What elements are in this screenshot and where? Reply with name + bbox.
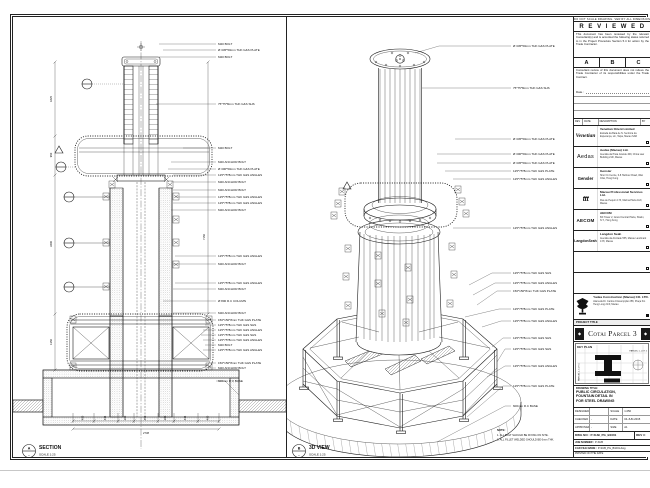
venetian-logo: Venetian — [576, 133, 596, 139]
consultant-row-langdonseah: LangdonSeah Langdon Seah Avenida da Amiz… — [574, 231, 650, 252]
leader-labels: M20 BOLT Ø 345*50mm THK G&S PLATE M20 BO… — [218, 42, 262, 383]
leader-label: 125*75*8mm THK G&S ANGLES — [218, 338, 262, 342]
drawing-title-block: DRAWING TITLE: PUBLIC CIRCULATION, FOUNT… — [574, 386, 650, 408]
foundation — [13, 370, 286, 425]
view-scale: SCALE 1:25 — [39, 453, 56, 457]
leader-label: M20 ANCHOR BOLT — [218, 366, 246, 370]
leader-label: 125*75*8mm THK G&S ANGLES — [513, 364, 557, 368]
leader-label: M20 ANCHOR BOLT — [218, 311, 246, 315]
leader-label: 75*75*8mm THK G&S SHS — [218, 102, 255, 106]
consultant-name: Venetian Orient Limited — [600, 128, 649, 132]
dwg-no-label: DWG NO : — [575, 432, 590, 439]
consultant-address: Avenida da Amizade 555, Macau Landmark 1… — [600, 237, 649, 243]
fluted-column — [356, 220, 442, 355]
dim-value: 400 — [206, 415, 210, 420]
status-c: C — [625, 58, 650, 67]
by-col-header: BY — [641, 119, 650, 125]
view-marker-bottom: - — [28, 453, 30, 457]
leader-label: 150*150*8mm THK G&S PLATE — [513, 289, 556, 293]
revision-cloud-basin — [55, 136, 212, 176]
leader-label: 600mm R.C BASE — [218, 379, 243, 383]
note-line: 2. ALL FILLET WELDED SHOULD BE 6mm THK. — [497, 438, 554, 442]
consultant-row-empty — [574, 252, 650, 273]
title-block: DO NOT SCALE DRAWING. VERIFY ALL DIMENSI… — [573, 17, 650, 457]
view-marker-top: A — [28, 447, 31, 451]
dim-value: 3400 — [49, 241, 53, 247]
reviewed-title: R E V I E W E D — [574, 22, 650, 32]
aedas-logo: Aedas — [577, 154, 594, 160]
section-view-title: A - SECTION SCALE 1:25 — [22, 445, 285, 458]
leader-label: 125*75*8mm THK G&S PLATE — [513, 384, 554, 388]
leader-label: 150*150*8mm THK G&S PLATE — [218, 361, 261, 365]
ornament-icon: ◆ — [575, 328, 584, 340]
contractor-logo — [575, 298, 590, 315]
leader-label: 125*75*8mm THK G&S SHS — [513, 336, 551, 340]
langdonseah-logo: LangdonSeah — [574, 239, 596, 243]
leader-label: Ø 345*50mm THK G&S PLATE — [513, 137, 555, 141]
scale-value: 1:250 — [623, 408, 650, 415]
leader-label: 125*75*8mm THK G&S ANGLES — [218, 348, 262, 352]
pipe-cluster — [343, 49, 457, 233]
rev-value: C — [643, 432, 645, 439]
leader-label: 125*75*8mm THK G&S ANGLES — [218, 281, 262, 285]
parcel-label-right: PARCEL 1, LOT 2 — [629, 350, 647, 353]
mps-logo: ttt — [583, 196, 589, 203]
date-value: 04-JUN-2015 — [623, 416, 650, 423]
status-checkbox-filled — [646, 314, 650, 318]
empty-row — [574, 103, 650, 110]
consultant-row-aecom: AECOM AECOM 8/F Tower 2, Grand Central P… — [574, 210, 650, 231]
contractor-address: Alameda Dr. Carlos d'Assumpção 258, Praç… — [593, 300, 649, 306]
status-checkbox — [646, 183, 650, 187]
view-title: SECTION — [39, 445, 62, 451]
reviewed-paragraph-1: This document has been reviewed by the r… — [574, 32, 650, 57]
status-b: B — [599, 58, 625, 67]
leader-label: M20 ANCHOR BOLT — [218, 287, 246, 291]
leader-label: M20 ANCHOR BOLT — [218, 188, 246, 192]
dim-value: 1350 — [49, 339, 53, 345]
approvals-row: DESIGNED SCALE 1:250 — [574, 408, 650, 416]
scale-label: SCALE — [609, 408, 623, 415]
approved-label: APPROVED — [574, 424, 590, 431]
drawing-sheet: 400 444 300 450 300 444 400 2738 1825 95… — [10, 14, 648, 460]
key-plan-map: KEY PLAN PARCEL 1, LOT 2 PARCEL 1, LOT 1 — [575, 343, 649, 384]
leader-label: Ø 345*50mm THK G&S PLATE — [513, 44, 555, 48]
leader-label: 125*75*8mm THK G&S ANGLES — [218, 254, 262, 258]
iso-view-panel: Ø 345*50mm THK G&S PLATE 75*75*8mm THK G… — [286, 17, 573, 457]
leader-label: Ø 345*50mm THK G&S PLATE — [218, 48, 260, 52]
dim-value: 950 — [49, 152, 53, 157]
consultant-address: Rua de Pequim 173, Marina Plaza 11/F, Ma… — [600, 199, 649, 205]
leader-label: 150*150*8mm THK G&S PLATE — [218, 318, 261, 322]
consultant-name: Macau Professional Services Ltd. — [600, 191, 649, 198]
dim-value: 7150 — [202, 234, 206, 240]
consultant-name: Langdon Seah — [600, 233, 649, 237]
section-view-panel: 400 444 300 450 300 444 400 2738 1825 95… — [13, 17, 286, 457]
key-plan: KEY PLAN PARCEL 1, LOT 2 PARCEL 1, LOT 1 — [574, 342, 650, 386]
consultant-name: Aedas (Macau) Ltd. — [600, 149, 649, 153]
dwg-no-value: P-SUB_PG_B1001 — [591, 432, 617, 439]
leader-label: 600mm R.C BASE — [513, 404, 538, 408]
status-checkbox — [646, 246, 650, 250]
leader-label: 125*75*8mm THK G&S ANGLES — [513, 177, 557, 181]
status-a: A — [574, 58, 599, 67]
size-label: SIZE — [609, 424, 623, 431]
consultant-address: Estrada da Baía de N. Senhora da Esperan… — [600, 132, 649, 138]
consultant-row-empty — [574, 273, 650, 294]
leader-label: 125*75*8mm THK G&S ANGLES — [513, 281, 557, 285]
view-marker-top: B — [298, 447, 301, 451]
leader-label: Ø 345*50mm THK G&S PLATE — [513, 161, 555, 165]
dim-value: 300 — [123, 415, 127, 420]
gensler-logo: Gensler — [578, 176, 594, 181]
approvals-row: APPROVED - SIZE A1 — [574, 424, 650, 431]
iso-view-drawing: Ø 345*50mm THK G&S PLATE 75*75*8mm THK G… — [287, 17, 573, 457]
leader-label: M20 ANCHOR BOLT — [218, 262, 246, 266]
leader-label: 125*75*8mm THK G&S ANGLES — [218, 201, 262, 205]
rev-col-header: REV — [574, 119, 583, 125]
leader-labels: Ø 345*50mm THK G&S PLATE 75*75*8mm THK G… — [513, 44, 557, 408]
printed-row: PRINTED ON THE DATE — [574, 452, 650, 457]
job-number-label: JOB NUMBER : — [575, 440, 594, 445]
leader-label: 125*75*8mm THK G&S ANGLES — [218, 173, 262, 177]
date-label: Date : — [576, 90, 584, 94]
leader-label: M20 ANCHOR BOLT — [218, 160, 246, 164]
leader-label: Ø 300*50mm THK G&S PLATE — [513, 152, 555, 156]
iso-notes: NOTE: 1. ALL BOLT SHOULD BE FIXING ON SI… — [497, 428, 554, 442]
consultant-address: Avenida da Praia Grande 409, China Law B… — [600, 153, 649, 159]
project-name-banner: ◆ Cotai Parcel 3 ◆ — [574, 326, 650, 342]
drawing-title-line: FOR STEEL DRAWING — [576, 399, 649, 403]
dim-value: 300 — [163, 415, 167, 420]
reviewed-date-row: Date : — [574, 88, 650, 96]
leader-label: M20 BOLT — [218, 42, 232, 46]
status-checkbox — [646, 162, 650, 166]
consultant-row-aedas: Aedas Aedas (Macau) Ltd. Avenida da Prai… — [574, 147, 650, 168]
leader-label: 125*75*8mm THK G&S ANGLES — [513, 319, 557, 323]
cad-drawing-sheet-screenshot: 400 444 300 450 300 444 400 2738 1825 95… — [0, 0, 650, 488]
dimension-lines: 400 444 300 450 300 444 400 2738 1825 95… — [49, 61, 221, 436]
ornament-icon: ◆ — [641, 328, 650, 340]
dim-value: 444 — [103, 415, 107, 420]
iso-view-title: B - 3D VIEW SCALE 1:25 — [291, 445, 570, 458]
view-marker-bottom: - — [298, 453, 300, 457]
dim-value: 400 — [81, 415, 85, 420]
size-value: A1 — [623, 424, 650, 431]
designed-label: DESIGNED — [574, 408, 590, 415]
status-checkbox — [646, 225, 650, 229]
leader-label: 125*75*8mm THK G&S ANGLES — [513, 226, 557, 230]
leader-label: 75*75*8mm THK G&S SHS — [513, 86, 550, 90]
contractor-name: Yadea Construction (Macau) CO. LTD. — [593, 296, 649, 300]
cad-file-label: CAD FILE NAME : — [575, 446, 597, 451]
date-col-header: DATE — [583, 119, 598, 125]
leader-label: 125*75*8mm THK G&S SHS — [513, 347, 551, 351]
status-checkbox — [646, 204, 650, 208]
key-plan-label: KEY PLAN — [577, 345, 592, 349]
checked-value: - — [590, 416, 609, 423]
empty-row — [574, 96, 650, 103]
status-checkbox — [646, 141, 650, 145]
leader-label: M20 ANCHOR BOLT — [218, 180, 246, 184]
leader-label: 125*75*8mm THK G&S PLATE — [513, 307, 554, 311]
checked-label: CHECKED — [574, 416, 590, 423]
empty-row — [574, 110, 650, 117]
consultant-address: 8/F Tower 2, Grand Central Plaza, Shatin… — [600, 216, 649, 222]
leader-label: M20 ANCHOR BOLT — [218, 208, 246, 212]
description-col-header: DESCRIPTION — [599, 119, 641, 125]
status-checkbox — [646, 267, 650, 271]
contractor-block: Yadea Construction (Macau) CO. LTD. Alam… — [574, 294, 650, 320]
job-number-value: P-SUB — [595, 440, 603, 445]
consultant-address: Shui On Centre, 6-8 Harbour Road, Wan Ch… — [600, 174, 649, 180]
leader-label: 125*75*8mm THK G&S SHS — [218, 333, 256, 337]
dwg-number-row: DWG NO : P-SUB_PG_B1001 REV C — [574, 432, 650, 440]
section-view-drawing: 400 444 300 450 300 444 400 2738 1825 95… — [13, 17, 286, 457]
leader-label: M20 BOLT — [218, 343, 232, 347]
paper-edge-line — [0, 470, 650, 471]
leader-label: Ø 800 R.C COLUMN — [218, 299, 246, 303]
leader-label: 125*75*8mm THK G&S SHS — [218, 323, 256, 327]
dim-total: 2738 — [143, 431, 149, 435]
leader-label: M20 BOLT — [218, 55, 232, 59]
consultant-name: Gensler — [600, 170, 649, 174]
rev-label: REV — [636, 432, 642, 439]
date-fill-line — [586, 91, 649, 94]
consultant-name: AECOM — [600, 212, 649, 216]
consultant-row-venetian: Venetian Venetian Orient Limited Estrada… — [574, 126, 650, 147]
project-name: Cotai Parcel 3 — [584, 329, 641, 338]
note-title: NOTE: — [497, 428, 505, 432]
approvals-row: CHECKED - DATE 04-JUN-2015 — [574, 416, 650, 424]
dim-value: 444 — [183, 415, 187, 420]
revision-cloud-base-box — [67, 314, 213, 417]
concrete-base-cylinder — [287, 360, 528, 457]
approved-value: - — [590, 424, 609, 431]
leader-label: M20 BOLT — [218, 146, 232, 150]
date-label: DATE — [609, 416, 623, 423]
dim-value: 1825 — [49, 96, 53, 102]
leader-label: 125*75*8mm THK G&S ANGLES — [218, 195, 262, 199]
consultant-row-gensler: Gensler Gensler Shui On Centre, 6-8 Harb… — [574, 168, 650, 189]
view-title: 3D VIEW — [309, 445, 330, 451]
leader-label: 125*75*8mm THK G&S PLATE — [513, 169, 554, 173]
designed-value — [590, 408, 609, 415]
status-abc-row: A B C — [574, 57, 650, 68]
cad-file-value: P-SUB_PG_B1001.dwg — [598, 446, 626, 451]
dim-value: 450 — [143, 415, 147, 420]
consultant-row-mps: ttt Macau Professional Services Ltd. Rua… — [574, 189, 650, 210]
aecom-logo: AECOM — [576, 218, 594, 223]
approvals-table: DESIGNED SCALE 1:250 CHECKED - DATE 04-J… — [574, 408, 650, 432]
leader-label: 125*75*8mm THK G&S SHS — [513, 271, 551, 275]
note-line: 1. ALL BOLT SHOULD BE FIXING ON SITE. — [497, 433, 549, 437]
leader-label: 125*75*8mm THK G&S ANGLES — [218, 328, 262, 332]
revision-header-row: REV DATE DESCRIPTION BY — [574, 119, 650, 126]
view-scale: SCALE 1:25 — [309, 453, 326, 457]
leader-label: Ø 300*50mm THK G&S PLATE — [218, 167, 260, 171]
reviewed-paragraph-2: Consultant review of this document does … — [574, 68, 650, 88]
parcel-label-left: PARCEL 1, LOT 1 — [578, 363, 581, 381]
reviewed-stamp: R E V I E W E D This document has been r… — [574, 22, 650, 119]
